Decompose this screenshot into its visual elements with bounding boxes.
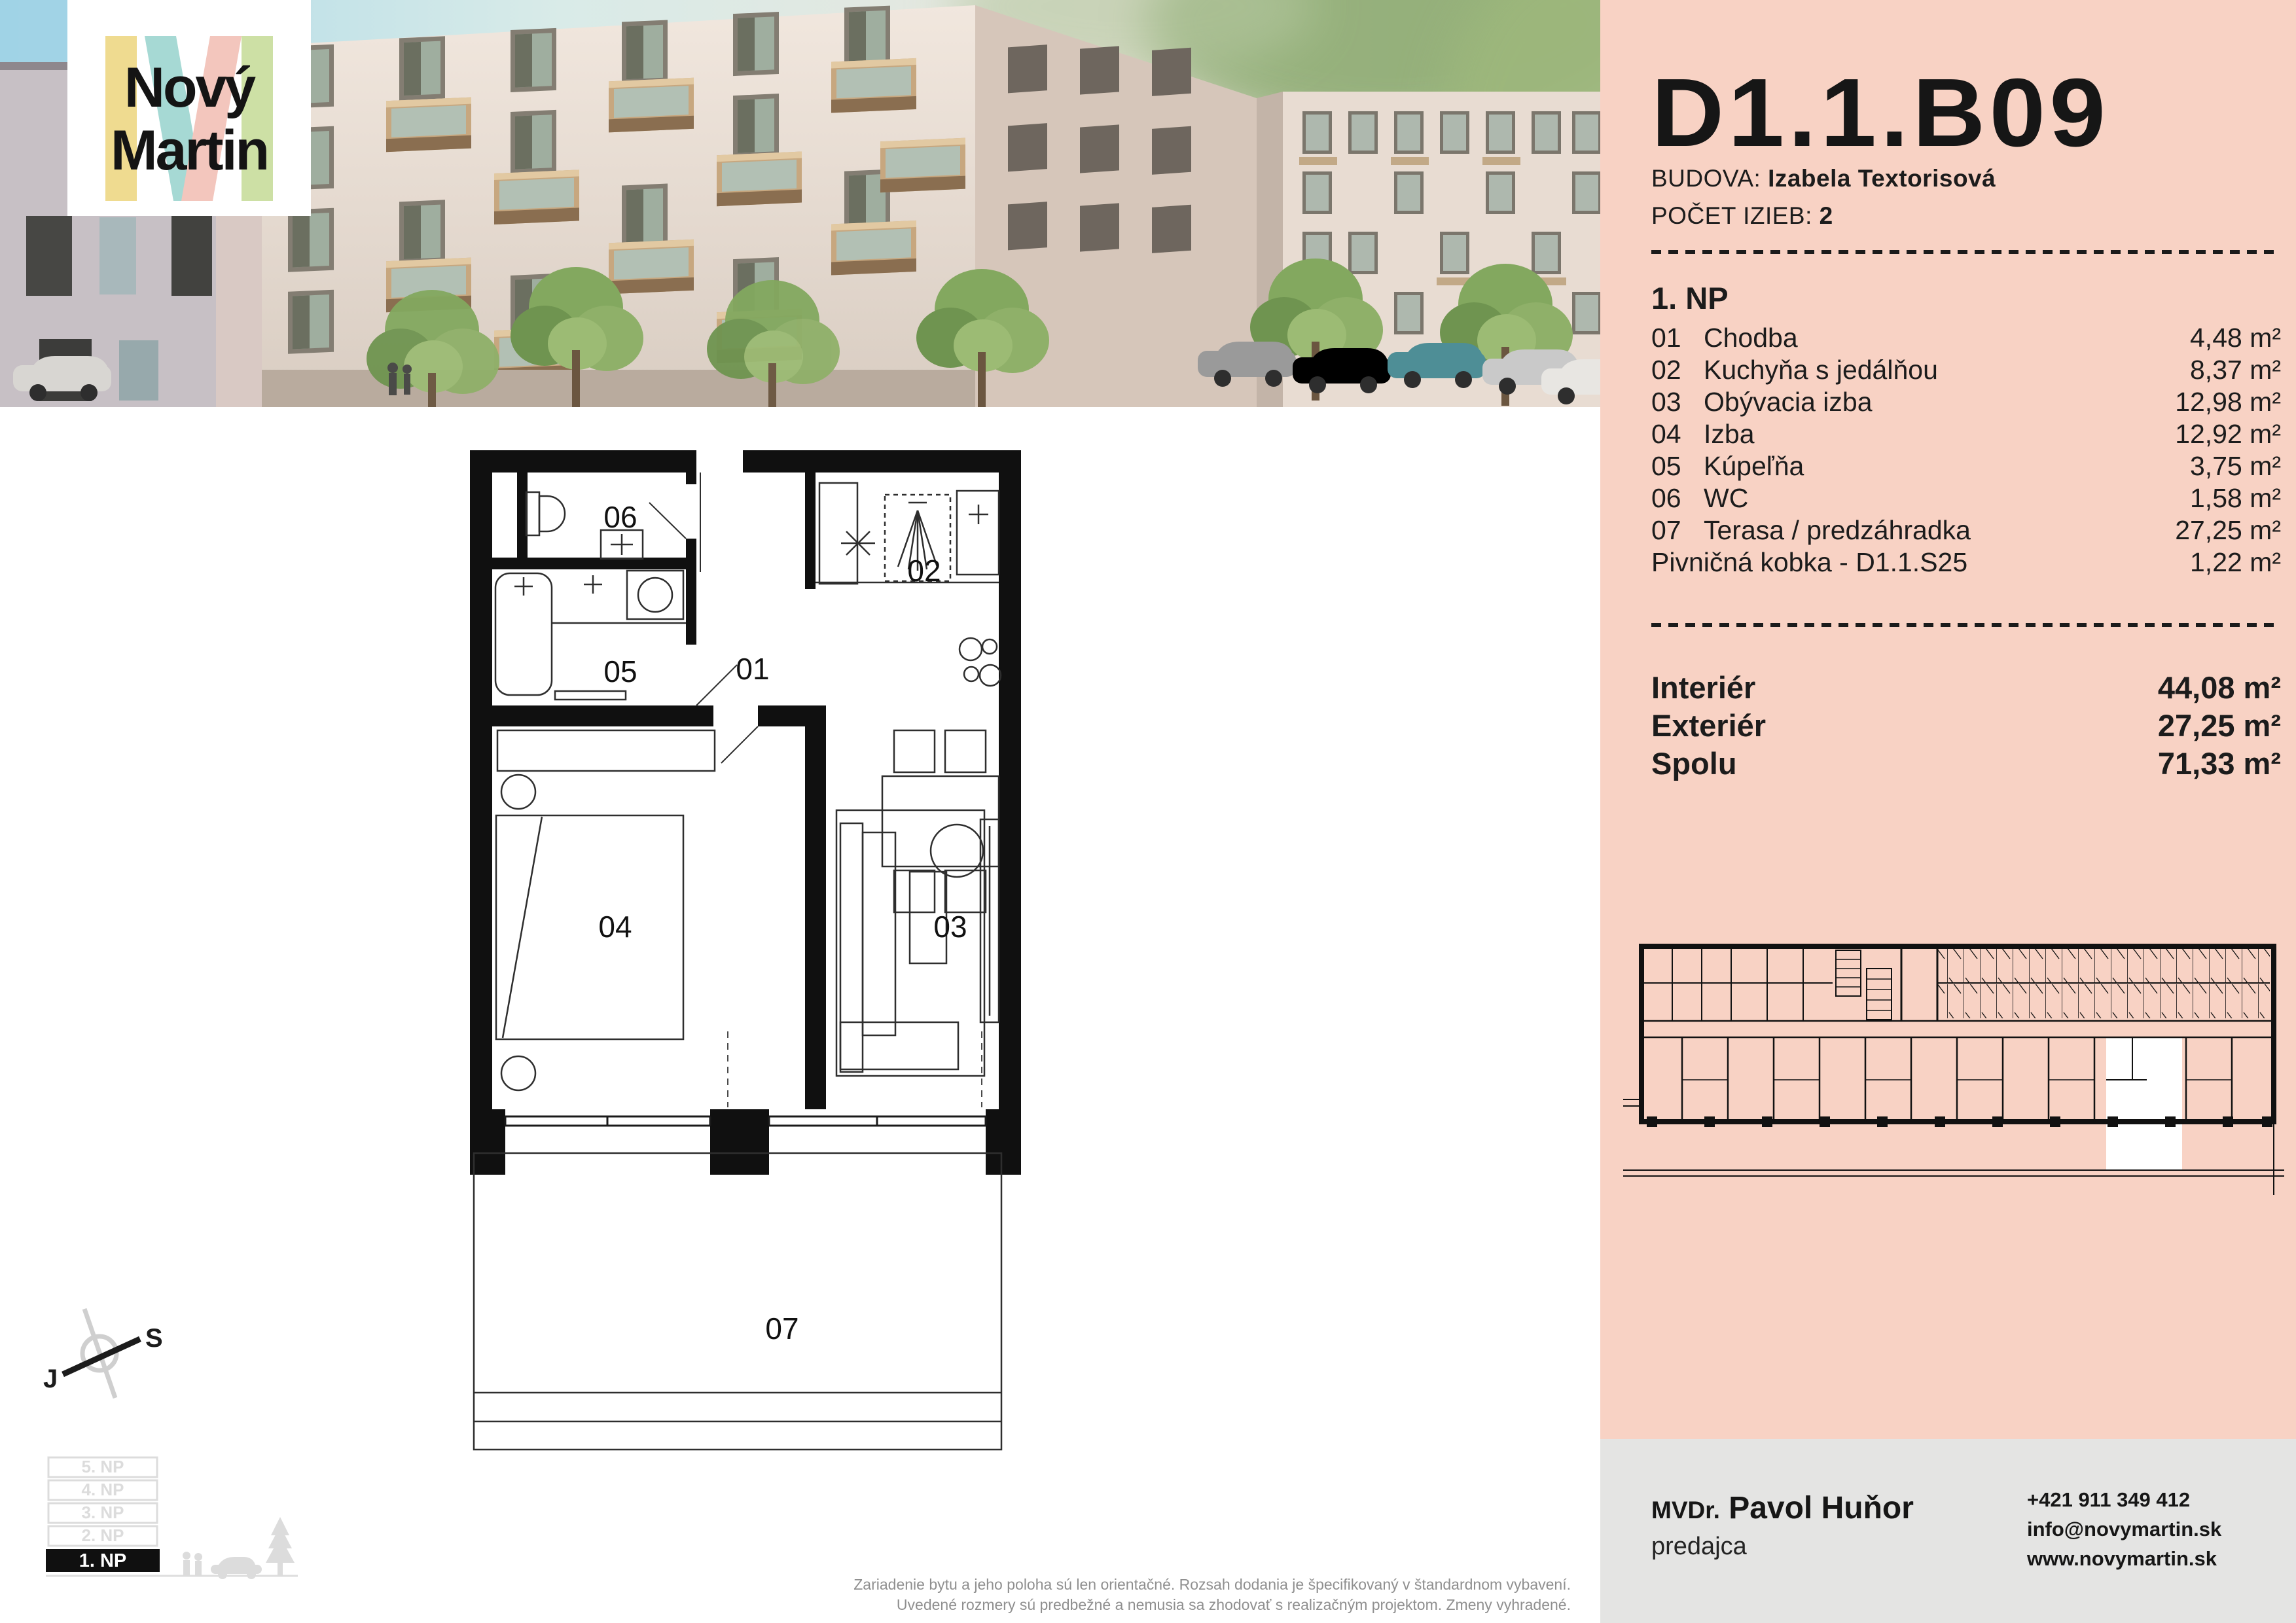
logo-wordmark: Nový Martin	[67, 56, 311, 182]
contact-details: +421 911 349 412 info@novymartin.sk www.…	[2027, 1485, 2221, 1573]
svg-text:3. NP: 3. NP	[81, 1503, 124, 1522]
room-label-05: 05	[603, 654, 637, 688]
compass-north-label: S	[145, 1324, 163, 1353]
miniplan-walls	[1623, 946, 2284, 1195]
svg-text:2. NP: 2. NP	[81, 1525, 124, 1545]
plan-room-labels: 06 05 01 02 04 03 07	[598, 500, 967, 1346]
floor-option-5np[interactable]: 5. NP	[48, 1457, 157, 1477]
disclaimer-line2: Uvedené rozmery sú predbežné a nemusia s…	[655, 1595, 1571, 1615]
room-row: 02 Kuchyňa s jedálňou 8,37 m²	[1651, 354, 2281, 386]
floor-option-4np[interactable]: 4. NP	[48, 1480, 157, 1500]
building-name: Izabela Textorisová	[1768, 165, 1996, 192]
rooms-count-row: POČET IZIEB: 2	[1651, 202, 1833, 230]
room-row: 03 Obývacia izba 12,98 m²	[1651, 386, 2281, 418]
unit-info-panel: D1.1.B09 BUDOVA: Izabela Textorisová POČ…	[1600, 0, 2296, 1439]
total-row-exterior: Exteriér 27,25 m²	[1651, 707, 2281, 745]
total-row-interior: Interiér 44,08 m²	[1651, 669, 2281, 707]
room-list: 01 Chodba 4,48 m² 02 Kuchyňa s jedálňou …	[1651, 322, 2281, 579]
apartment-floor-plan: 06 05 01 02 04 03 07	[458, 432, 1021, 1453]
contact-footer: MVDr. Pavol Huňor predajca +421 911 349 …	[1600, 1439, 2296, 1623]
logo-line1: Nový	[67, 56, 311, 119]
logo: Nový Martin	[67, 0, 311, 216]
disclaimer-line1: Zariadenie bytu a jeho poloha sú len ori…	[655, 1575, 1571, 1595]
contact-phone[interactable]: +421 911 349 412	[2027, 1485, 2221, 1514]
dashed-divider	[1651, 623, 2281, 627]
agent-title: MVDr.	[1651, 1497, 1720, 1524]
total-row-spolu: Spolu 71,33 m²	[1651, 745, 2281, 783]
room-row: Pivničná kobka - D1.1.S25 1,22 m²	[1651, 546, 2281, 579]
agent-name: Pavol Huňor	[1729, 1491, 1914, 1525]
room-label-03: 03	[933, 910, 967, 944]
rooms-count-value: 2	[1820, 202, 1833, 229]
building-row: BUDOVA: Izabela Textorisová	[1651, 165, 1996, 192]
agent-role: predajca	[1651, 1533, 1914, 1561]
street-silhouettes	[183, 1517, 295, 1579]
rooms-count-label: POČET IZIEB:	[1651, 202, 1812, 229]
floor-selector: 5. NP 4. NP 3. NP 2. NP 1. NP	[26, 1446, 301, 1587]
compass-south-label: J	[43, 1364, 58, 1393]
dashed-divider	[1651, 250, 2281, 254]
plan-furniture	[474, 473, 1001, 1450]
room-row: 05 Kúpeľňa 3,75 m²	[1651, 450, 2281, 482]
room-label-07: 07	[765, 1311, 798, 1346]
building-overview-plan	[1623, 936, 2284, 1198]
floor-option-2np[interactable]: 2. NP	[48, 1525, 157, 1546]
floor-option-1np-active[interactable]: 1. NP	[46, 1549, 160, 1572]
svg-text:4. NP: 4. NP	[81, 1480, 124, 1499]
svg-text:5. NP: 5. NP	[81, 1457, 124, 1476]
room-row: 06 WC 1,58 m²	[1651, 482, 2281, 514]
room-row: 01 Chodba 4,48 m²	[1651, 322, 2281, 354]
room-label-01: 01	[736, 652, 769, 686]
unit-code: D1.1.B09	[1651, 58, 2109, 169]
room-label-04: 04	[598, 910, 632, 944]
area-totals: Interiér 44,08 m² Exteriér 27,25 m² Spol…	[1651, 669, 2281, 783]
room-row: 07 Terasa / predzáhradka 27,25 m²	[1651, 514, 2281, 546]
disclaimer: Zariadenie bytu a jeho poloha sú len ori…	[655, 1575, 1571, 1615]
logo-line2: Martin	[67, 119, 311, 182]
room-label-02: 02	[907, 554, 941, 588]
agent-block: MVDr. Pavol Huňor predajca	[1651, 1490, 1914, 1561]
svg-text:1. NP: 1. NP	[79, 1550, 127, 1571]
room-row: 04 Izba 12,92 m²	[1651, 418, 2281, 450]
floor-heading: 1. NP	[1651, 280, 1729, 316]
room-label-06: 06	[603, 500, 637, 534]
floor-option-3np[interactable]: 3. NP	[48, 1503, 157, 1523]
building-label: BUDOVA:	[1651, 165, 1761, 192]
contact-web[interactable]: www.novymartin.sk	[2027, 1544, 2221, 1573]
contact-email[interactable]: info@novymartin.sk	[2027, 1514, 2221, 1544]
brochure-page: Nový Martin	[0, 0, 2296, 1623]
compass-icon: J S	[26, 1296, 170, 1407]
